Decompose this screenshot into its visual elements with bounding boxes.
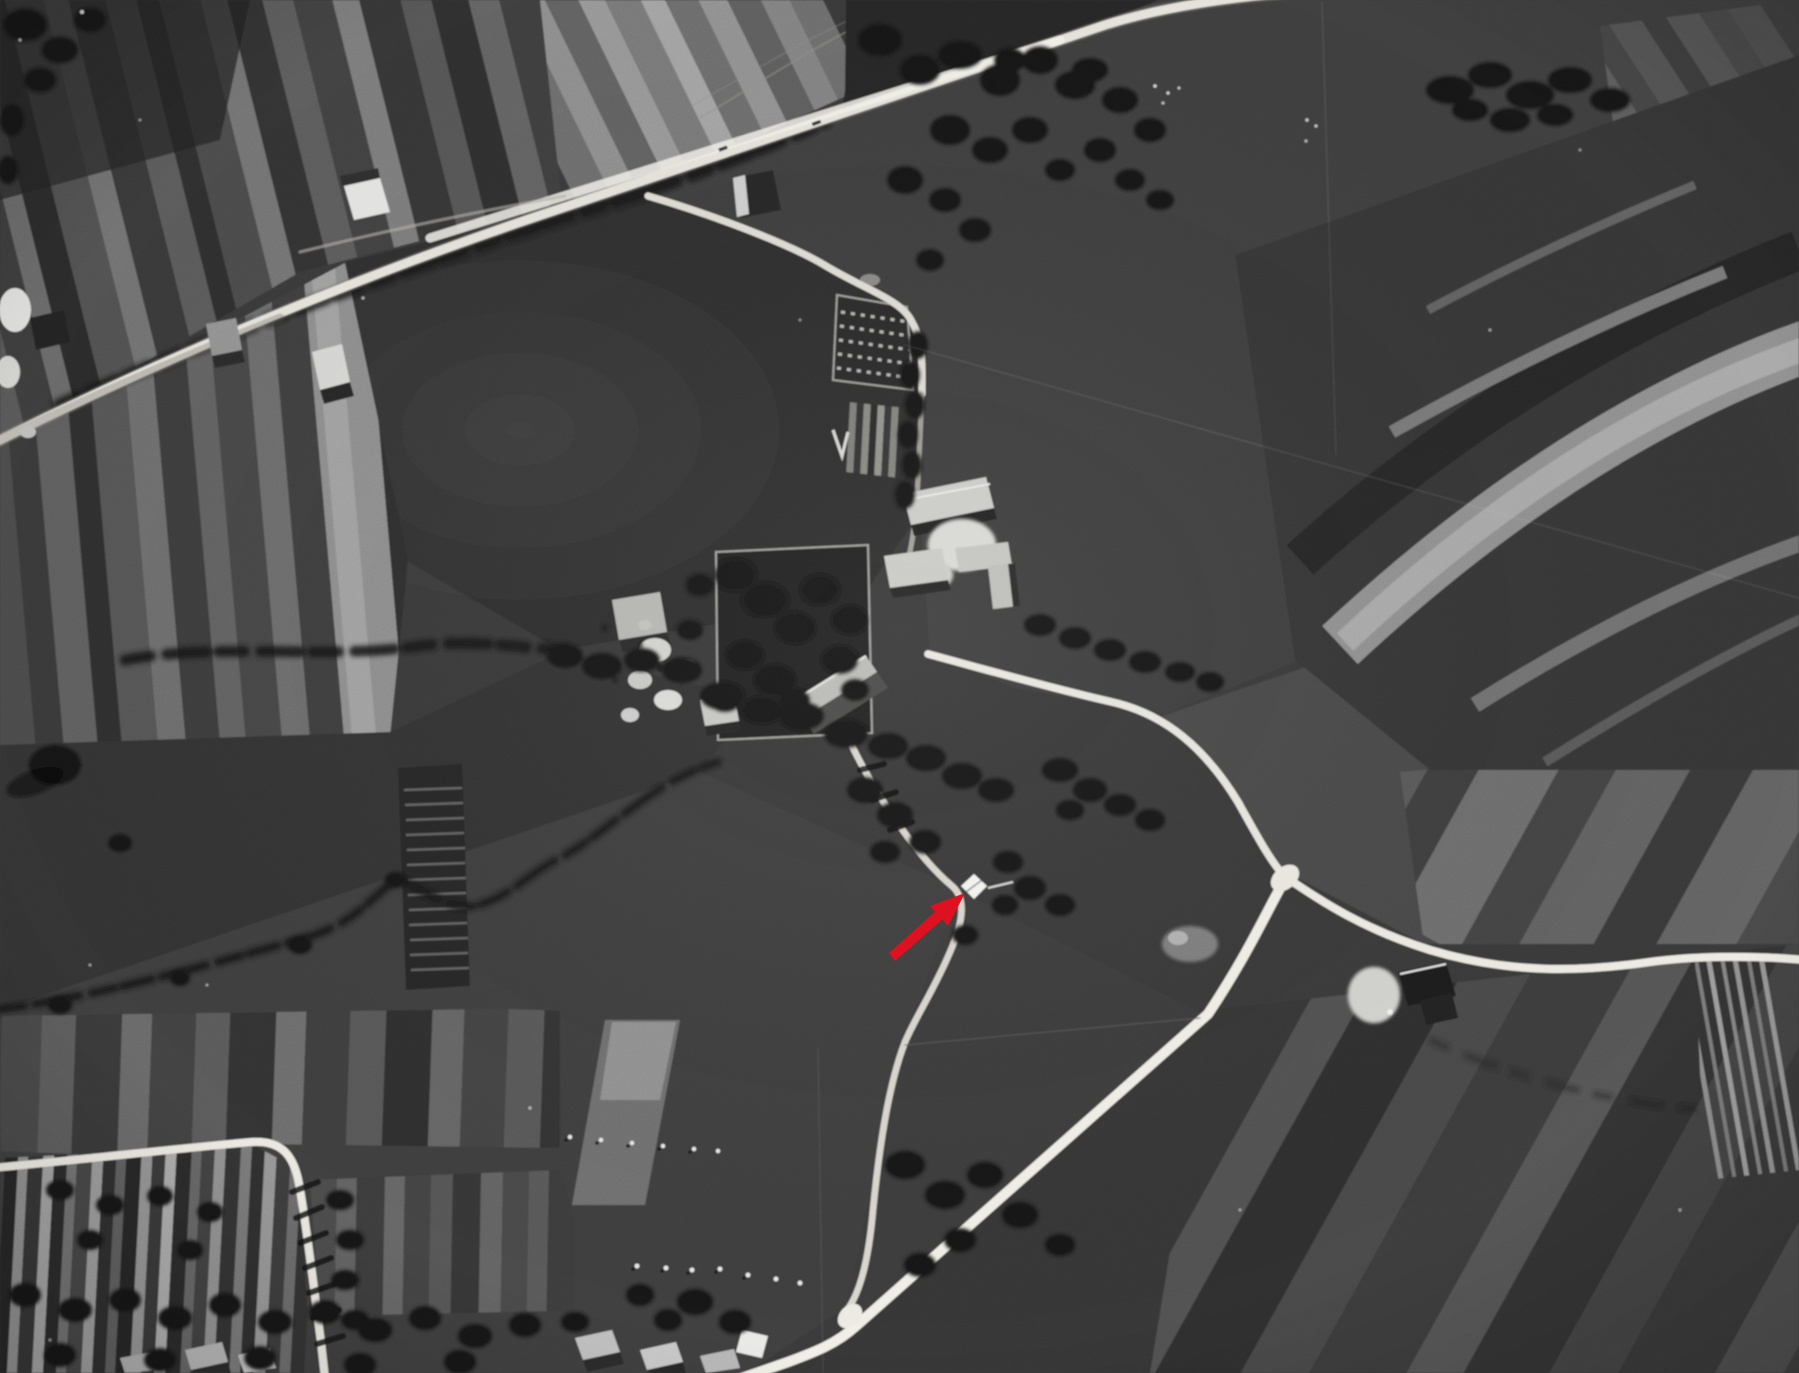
aerial-photograph: Monochrome aerial reconnaissance photogr… bbox=[0, 0, 1799, 1373]
film-grain bbox=[0, 0, 1799, 1373]
aerial-photograph-frame: Monochrome aerial reconnaissance photogr… bbox=[0, 0, 1799, 1373]
